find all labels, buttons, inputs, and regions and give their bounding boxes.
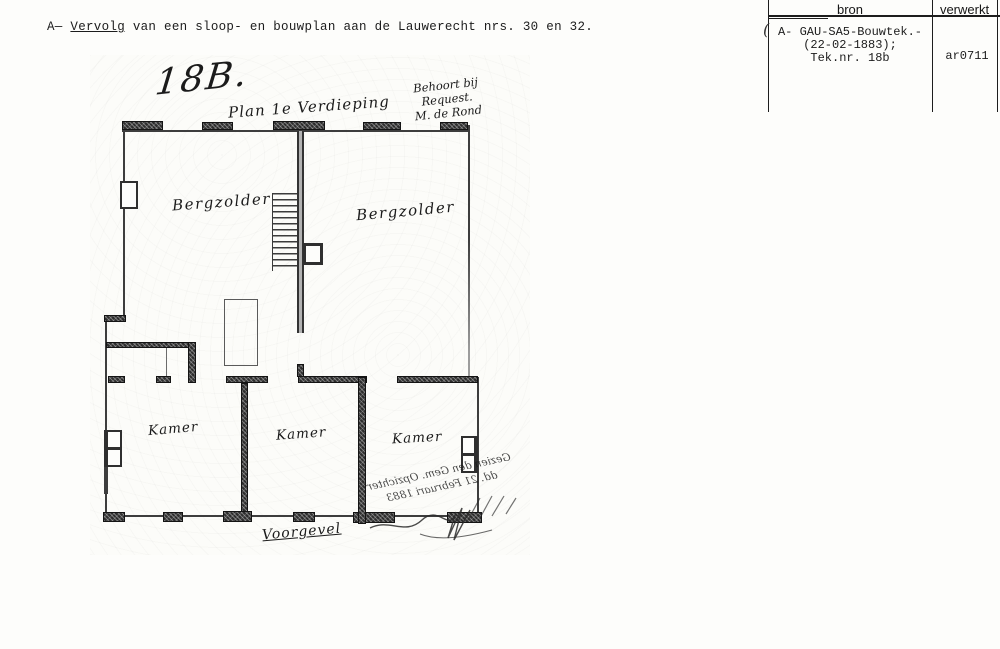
bottom-pier-1 — [103, 512, 125, 522]
signature-scribble — [360, 490, 530, 545]
chimney-box — [303, 243, 323, 265]
top-pier-1 — [122, 121, 163, 130]
center-spine-wall — [297, 131, 304, 333]
caption-underlined-word: Vervolg — [70, 20, 125, 34]
partition-foot — [156, 376, 171, 383]
wall-row-segment-mid-right — [298, 376, 367, 383]
bottom-pier-4 — [293, 512, 315, 522]
left-flue-box — [120, 181, 138, 209]
room-label-kamer-3: Kamer — [392, 429, 443, 448]
column-header-verwerkt: verwerkt — [932, 2, 997, 17]
document-caption: A— Vervolg van een sloop- en bouwplan aa… — [47, 20, 593, 34]
top-wall-line — [122, 130, 469, 132]
caption-text: van een sloop- en bouwplan aan de Lauwer… — [125, 20, 593, 34]
column-header-bron: bron — [768, 2, 932, 17]
left-wall-hatch — [104, 467, 108, 494]
left-window-upper — [104, 430, 122, 449]
staircase — [272, 193, 297, 271]
top-pier-3 — [273, 121, 325, 130]
right-wall-upper — [468, 125, 470, 377]
wall-row-segment-right — [397, 376, 478, 383]
stairwell-opening — [224, 299, 258, 366]
left-window-lower — [104, 448, 122, 467]
room-divider-wall-1 — [241, 383, 248, 512]
interior-wall-horizontal — [106, 342, 196, 348]
wall-row-segment-left — [108, 376, 125, 383]
bottom-pier-2 — [163, 512, 183, 522]
top-pier-2 — [202, 122, 233, 130]
caption-index: A— — [47, 20, 70, 34]
bottom-pier-3 — [223, 511, 252, 522]
left-wall-upper — [123, 131, 125, 316]
table-border-right — [997, 0, 998, 112]
wall-row-segment-mid-left — [226, 376, 268, 383]
bron-line-3: Tek.nr. 18b — [770, 52, 930, 65]
interior-wall-vertical — [188, 342, 196, 383]
scanned-archive-card: A— Vervolg van een sloop- en bouwplan aa… — [0, 0, 1000, 649]
pen-mark: ( — [763, 20, 769, 39]
bron-entry: A- GAU-SA5-Bouwtek.- (22-02-1883); Tek.n… — [770, 26, 930, 65]
left-wall-jog — [104, 315, 126, 322]
right-window-upper — [461, 436, 478, 455]
verwerkt-entry: ar0711 — [938, 49, 996, 63]
table-header-rule-artifact — [768, 18, 828, 19]
thin-partition — [166, 348, 167, 377]
top-pier-5 — [440, 122, 468, 130]
